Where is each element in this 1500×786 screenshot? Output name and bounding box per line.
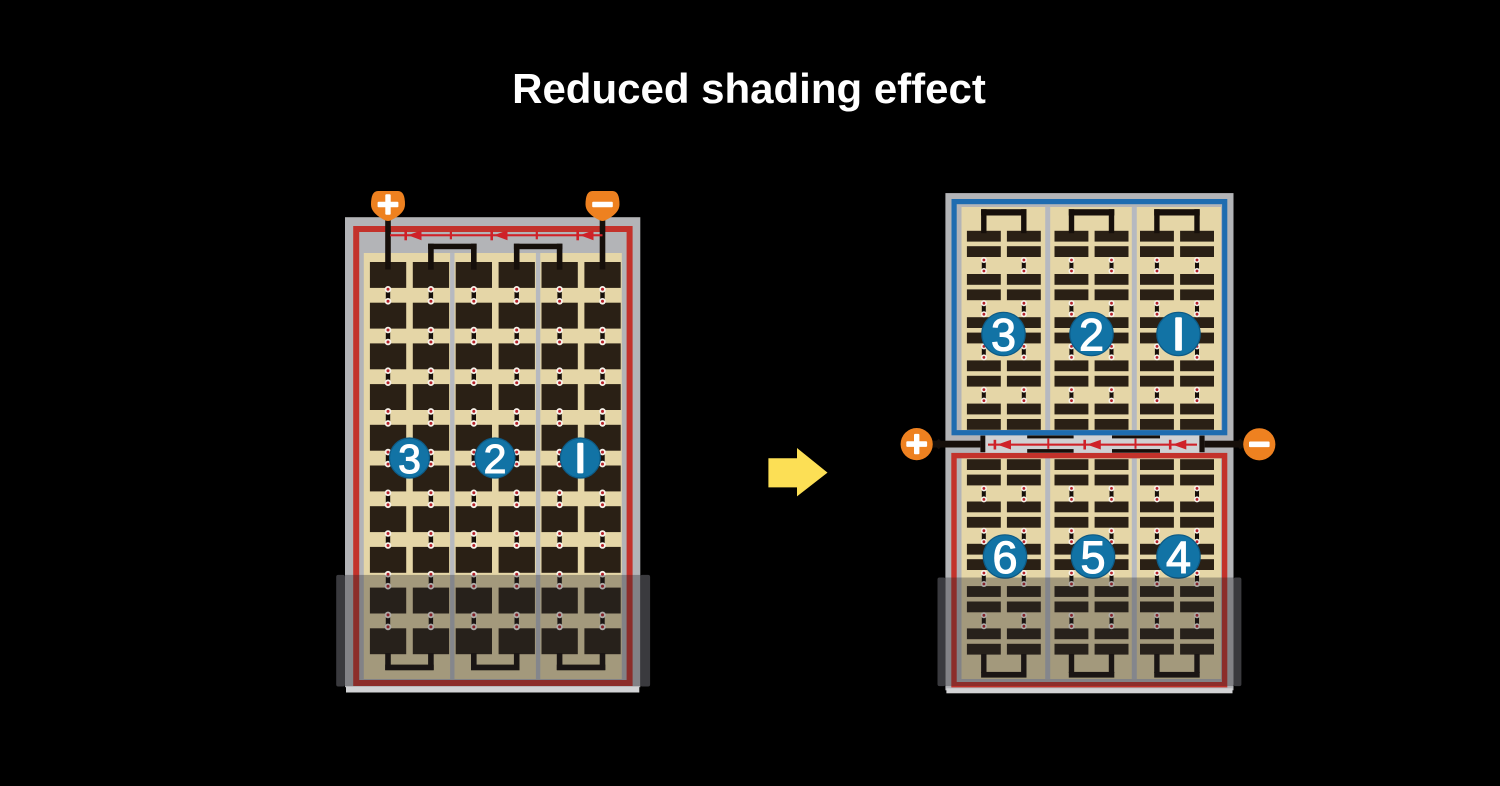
svg-text:2: 2	[1079, 309, 1104, 360]
svg-text:Reduced shading effect: Reduced shading effect	[512, 65, 986, 112]
svg-text:2: 2	[484, 436, 507, 482]
svg-text:6: 6	[992, 532, 1017, 583]
svg-text:5: 5	[1080, 532, 1105, 583]
svg-text:3: 3	[398, 436, 421, 482]
svg-text:3: 3	[991, 309, 1016, 360]
svg-text:4: 4	[1166, 532, 1191, 583]
